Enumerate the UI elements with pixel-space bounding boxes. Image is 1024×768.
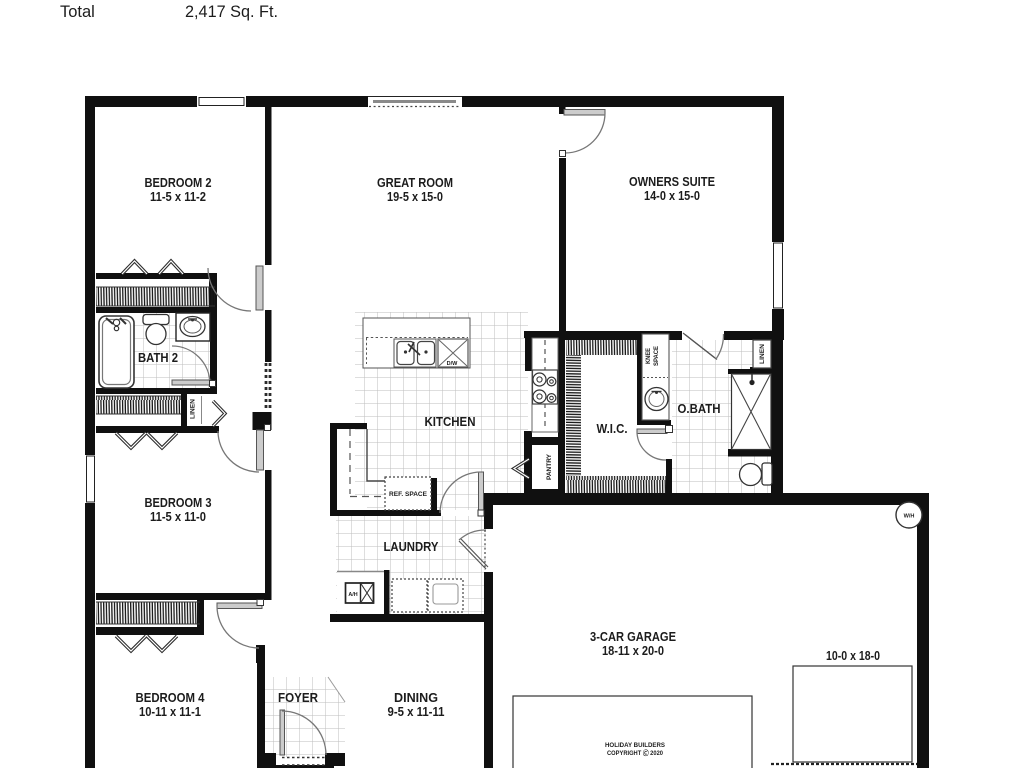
svg-text:Total: Total — [60, 3, 95, 21]
svg-text:O.BATH: O.BATH — [678, 401, 721, 416]
svg-text:2,417 Sq. Ft.: 2,417 Sq. Ft. — [185, 3, 278, 21]
svg-text:W.I.C.: W.I.C. — [597, 421, 628, 436]
svg-text:10-11 x 11-1: 10-11 x 11-1 — [139, 705, 201, 719]
svg-text:W/H: W/H — [904, 514, 915, 520]
svg-text:GREAT ROOM: GREAT ROOM — [377, 175, 453, 190]
svg-text:D/W: D/W — [447, 361, 459, 367]
svg-text:A/H: A/H — [348, 592, 357, 598]
svg-text:10-0 x 18-0: 10-0 x 18-0 — [826, 649, 880, 663]
svg-text:COPYRIGHT Ⓒ 2020: COPYRIGHT Ⓒ 2020 — [607, 748, 663, 757]
svg-text:PANTRY: PANTRY — [547, 454, 553, 480]
svg-text:BEDROOM 3: BEDROOM 3 — [145, 495, 212, 510]
svg-text:18-11 x 20-0: 18-11 x 20-0 — [602, 644, 664, 658]
svg-text:BATH 2: BATH 2 — [138, 350, 178, 365]
svg-text:KITCHEN: KITCHEN — [425, 414, 476, 429]
svg-text:LINEN: LINEN — [760, 344, 766, 364]
svg-text:FOYER: FOYER — [278, 690, 319, 705]
svg-text:REF. SPACE: REF. SPACE — [389, 492, 427, 498]
svg-text:9-5 x 11-11: 9-5 x 11-11 — [388, 705, 445, 719]
svg-text:14-0 x 15-0: 14-0 x 15-0 — [644, 189, 700, 203]
svg-text:BEDROOM 4: BEDROOM 4 — [136, 690, 206, 705]
svg-text:BEDROOM 2: BEDROOM 2 — [145, 175, 212, 190]
svg-text:11-5 x 11-2: 11-5 x 11-2 — [150, 190, 206, 204]
svg-text:SPACE: SPACE — [654, 346, 660, 366]
svg-text:3-CAR GARAGE: 3-CAR GARAGE — [590, 629, 676, 644]
svg-text:LAUNDRY: LAUNDRY — [384, 539, 439, 554]
svg-text:DINING: DINING — [394, 690, 438, 705]
svg-text:HOLIDAY BUILDERS: HOLIDAY BUILDERS — [605, 742, 666, 749]
svg-text:OWNERS SUITE: OWNERS SUITE — [629, 174, 715, 189]
svg-text:LINEN: LINEN — [191, 399, 197, 419]
svg-text:KNEE: KNEE — [646, 348, 652, 364]
svg-text:19-5 x 15-0: 19-5 x 15-0 — [387, 190, 443, 204]
svg-text:11-5 x 11-0: 11-5 x 11-0 — [150, 510, 206, 524]
